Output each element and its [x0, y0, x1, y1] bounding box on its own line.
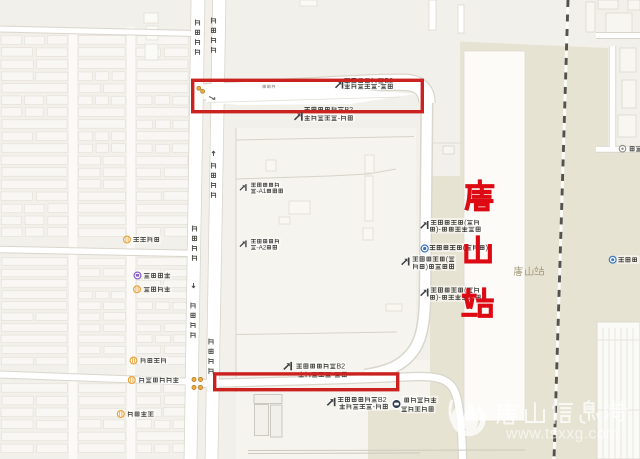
- svg-text:): ): [426, 262, 428, 271]
- svg-text:)-: )-: [436, 293, 441, 302]
- svg-text:-A1: -A1: [256, 188, 266, 195]
- svg-text:www.tsxxg.com: www.tsxxg.com: [505, 426, 619, 443]
- svg-text:B2: B2: [336, 362, 345, 371]
- svg-text:)-: )-: [436, 225, 441, 234]
- svg-text:-A2: -A2: [256, 244, 266, 251]
- svg-text:): ): [486, 243, 488, 252]
